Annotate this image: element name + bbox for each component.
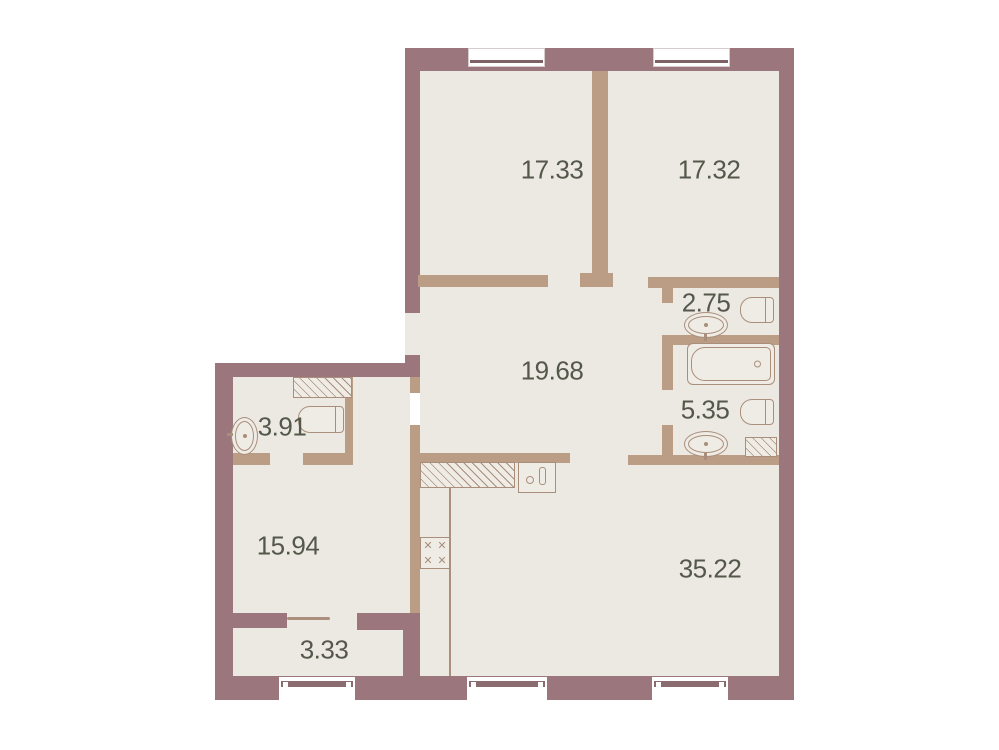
room-label-bedroom-1: 17.33 [521,155,584,186]
sink-drain-icon [704,323,708,327]
window [279,677,355,700]
kitchen-zone-line [449,488,451,676]
stove-icon: ✕✕✕✕ [420,537,450,569]
window [652,677,728,700]
window-notch [283,682,288,687]
window-notch [656,682,661,687]
window-frame [655,60,728,63]
wall-hall-top-left [418,275,548,287]
toilet-icon [740,297,774,323]
window-notch [538,682,543,687]
wall-room-bottom-right [357,613,420,630]
toilet-icon [740,399,774,425]
wall-block-divider-lower [410,425,420,613]
wall-leftblock-top [215,363,420,377]
kitchen-sink-icon [518,462,556,493]
room-label-bedroom-2: 17.32 [678,155,741,186]
room-label-wc-guest: 3.91 [258,412,307,443]
wall-bedroom-divider-foot [580,273,613,287]
sink-icon [231,417,258,455]
sink-drain-icon [704,442,708,446]
wall-bedroom-divider [592,71,608,273]
burner-icon: ✕ [435,538,449,553]
entrance-opening [405,313,420,357]
room-label-balcony: 3.33 [300,635,349,666]
wall-room-bottom-left [233,613,287,628]
faucet-icon [704,453,707,460]
window-notch [471,682,476,687]
burner-icon: ✕ [435,553,449,568]
room-label-bathroom: 5.35 [681,395,730,426]
window [467,677,547,700]
sink-drain-icon [243,434,247,438]
toilet-tank [765,298,766,322]
burner-icon: ✕ [421,553,435,568]
window [653,48,730,67]
wall-wc-left-stub [662,288,673,303]
ventilation-shaft-icon [745,437,777,457]
faucet-icon [539,467,546,485]
ventilation-shaft-icon [293,377,352,398]
bathtub-icon [687,343,775,385]
bathtub-drain-icon [754,361,761,368]
toilet-tank [765,400,766,424]
window-frame [469,681,545,687]
wall-leftblock-left [215,377,233,700]
balcony-door[interactable] [287,617,330,620]
faucet-icon [704,334,707,341]
room-label-wc: 2.75 [682,288,731,319]
wall-wc-guest-bottom-left [233,453,270,465]
floor-plan: ✕✕✕✕ 17.33 17.32 2.75 19.68 5.35 3.91 15… [0,0,999,750]
wall-right [779,48,794,700]
kitchen-counter-icon [420,462,515,488]
sink-drain-icon [526,476,534,484]
room-label-hallway: 19.68 [521,356,584,387]
toilet-tank [335,407,336,432]
faucet-icon [227,433,233,436]
room-label-room: 15.94 [257,531,320,562]
window-frame [470,60,543,63]
wall-top [405,48,794,71]
window-frame [654,681,726,687]
burner-icon: ✕ [421,538,435,553]
wall-bath-left-upper [662,345,673,390]
wall-bath-top [648,277,779,288]
window-notch [719,682,724,687]
window-notch [346,682,351,687]
window-frame [281,681,353,687]
wall-block-divider-upper [410,377,420,393]
wall-wc-guest-bottom-right [303,453,353,465]
window [468,48,545,67]
room-label-living: 35.22 [679,554,742,585]
